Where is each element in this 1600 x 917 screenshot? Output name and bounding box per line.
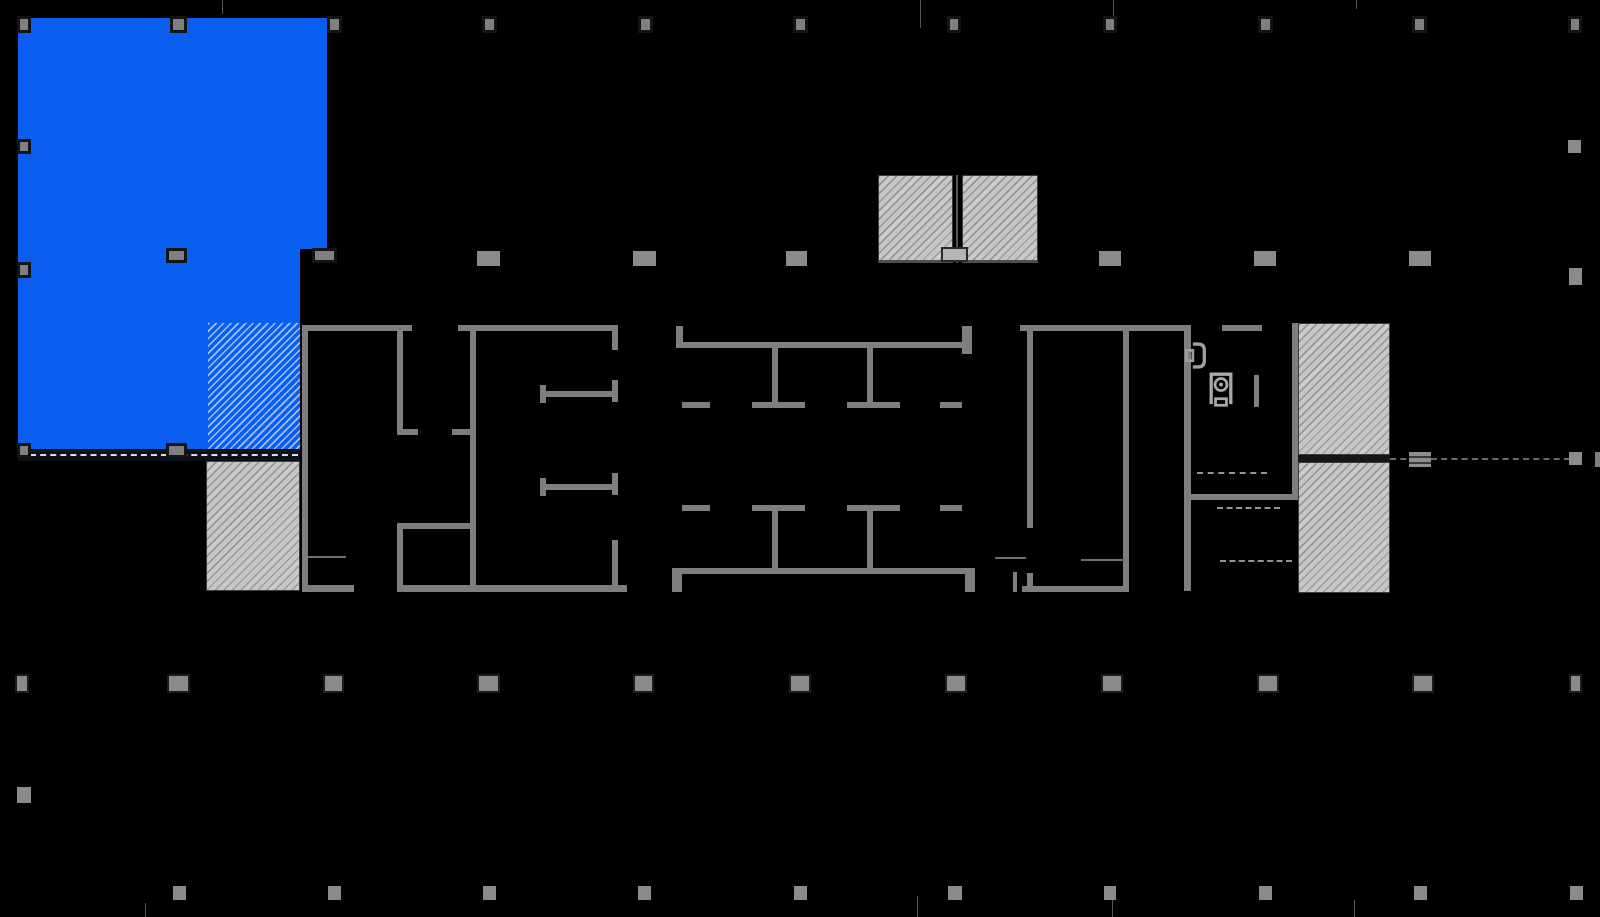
- wall: [1184, 494, 1298, 500]
- structural-column: [947, 16, 961, 33]
- structural-column: [1412, 674, 1434, 693]
- shaft-hatch: [962, 175, 1038, 263]
- wall: [397, 523, 476, 529]
- structural-column: [1414, 886, 1427, 900]
- grid-tick: [1354, 900, 1355, 917]
- fountain-icon: [1185, 342, 1207, 369]
- shaft-hatch: [1298, 323, 1390, 455]
- structural-column: [15, 674, 29, 693]
- wall: [612, 325, 618, 350]
- wall: [540, 478, 546, 496]
- wall: [682, 342, 962, 348]
- wall: [1027, 331, 1033, 528]
- structural-column: [17, 139, 31, 154]
- wall: [302, 325, 412, 331]
- structural-column: [482, 16, 497, 33]
- wall: [1123, 331, 1129, 592]
- structural-column: [1568, 140, 1581, 153]
- suite-highlight[interactable]: [18, 18, 327, 249]
- structural-column: [1569, 268, 1582, 285]
- structural-column: [638, 886, 651, 900]
- wall: [1254, 375, 1259, 407]
- wall: [1013, 572, 1017, 592]
- wall: [1222, 325, 1262, 331]
- structural-column: [1409, 452, 1431, 467]
- wall: [682, 402, 710, 408]
- wall: [752, 402, 805, 408]
- counter-line: [1081, 559, 1125, 561]
- wall: [302, 325, 308, 591]
- structural-column: [170, 16, 187, 33]
- structural-column: [794, 886, 807, 900]
- wall: [847, 505, 900, 511]
- shaft-gap-band: [1298, 455, 1390, 462]
- structural-column: [1101, 674, 1123, 693]
- structural-column: [1259, 886, 1272, 900]
- structural-column: [17, 443, 31, 458]
- structural-column: [1568, 16, 1582, 33]
- structural-column: [1570, 886, 1583, 900]
- wall: [540, 484, 618, 490]
- wall: [962, 326, 972, 354]
- structural-column: [633, 251, 656, 266]
- wall: [772, 348, 778, 408]
- structural-column: [1104, 886, 1116, 900]
- shaft-door: [941, 247, 968, 262]
- wall: [612, 473, 618, 495]
- wall: [612, 380, 618, 402]
- structural-column: [1103, 16, 1117, 33]
- floor-plan: [0, 0, 1600, 917]
- wall: [682, 568, 965, 574]
- grid-tick: [145, 903, 146, 917]
- structural-column: [1409, 251, 1431, 266]
- dashed-partition: [1217, 507, 1280, 509]
- wall: [672, 568, 682, 592]
- counter-line: [308, 556, 346, 558]
- wall: [940, 402, 962, 408]
- wall: [397, 585, 627, 592]
- structural-column: [1412, 16, 1427, 33]
- wall: [397, 529, 403, 591]
- structural-column: [477, 674, 500, 693]
- shaft-hatch: [1298, 462, 1390, 593]
- structural-column: [945, 674, 967, 693]
- structural-column: [1257, 674, 1279, 693]
- wall: [867, 348, 873, 408]
- wall: [540, 391, 618, 397]
- structural-column: [483, 886, 496, 900]
- structural-column: [173, 886, 186, 900]
- door-line: [995, 557, 1026, 559]
- structural-column: [166, 248, 187, 263]
- structural-column: [789, 674, 811, 693]
- structural-column: [1099, 251, 1121, 266]
- shaft-hatch: [206, 461, 300, 591]
- wall: [867, 511, 873, 568]
- structural-column: [948, 886, 962, 900]
- dashed-partition: [1197, 472, 1267, 474]
- structural-column: [638, 16, 653, 33]
- structural-column: [323, 674, 344, 693]
- structural-column: [17, 787, 31, 803]
- structural-column: [1569, 452, 1582, 465]
- wall: [458, 325, 618, 331]
- structural-column: [327, 16, 342, 33]
- structural-column: [167, 674, 190, 693]
- wall: [752, 505, 805, 511]
- toilet-icon: [1209, 371, 1233, 409]
- wall: [397, 429, 418, 435]
- wall: [540, 385, 546, 403]
- suite-highlight-hatched[interactable]: [208, 323, 300, 455]
- structural-column: [786, 251, 807, 266]
- wall: [470, 331, 476, 591]
- wall: [965, 568, 975, 592]
- structural-column: [166, 443, 187, 458]
- wall: [1292, 323, 1298, 500]
- structural-column: [633, 674, 654, 693]
- structural-column: [328, 886, 341, 900]
- wall: [847, 402, 900, 408]
- grid-tick: [917, 896, 918, 917]
- structural-column: [17, 16, 31, 33]
- wall: [397, 331, 403, 434]
- structural-column: [1258, 16, 1273, 33]
- structural-column: [1569, 674, 1582, 693]
- grid-tick: [222, 0, 223, 14]
- grid-tick: [1356, 0, 1357, 9]
- structural-column: [477, 251, 500, 266]
- wall: [1020, 325, 1190, 331]
- wall: [1022, 586, 1129, 592]
- suite-boundary-dashed: [18, 449, 300, 461]
- structural-column: [793, 16, 808, 33]
- wall: [940, 505, 962, 511]
- grid-tick: [920, 0, 921, 28]
- wall: [1595, 452, 1600, 467]
- structural-column: [312, 248, 337, 263]
- wall: [302, 585, 354, 592]
- structural-column: [1254, 251, 1276, 266]
- structural-column: [17, 262, 31, 278]
- wall: [772, 511, 778, 568]
- dashed-partition: [1220, 560, 1292, 562]
- wall: [682, 505, 710, 511]
